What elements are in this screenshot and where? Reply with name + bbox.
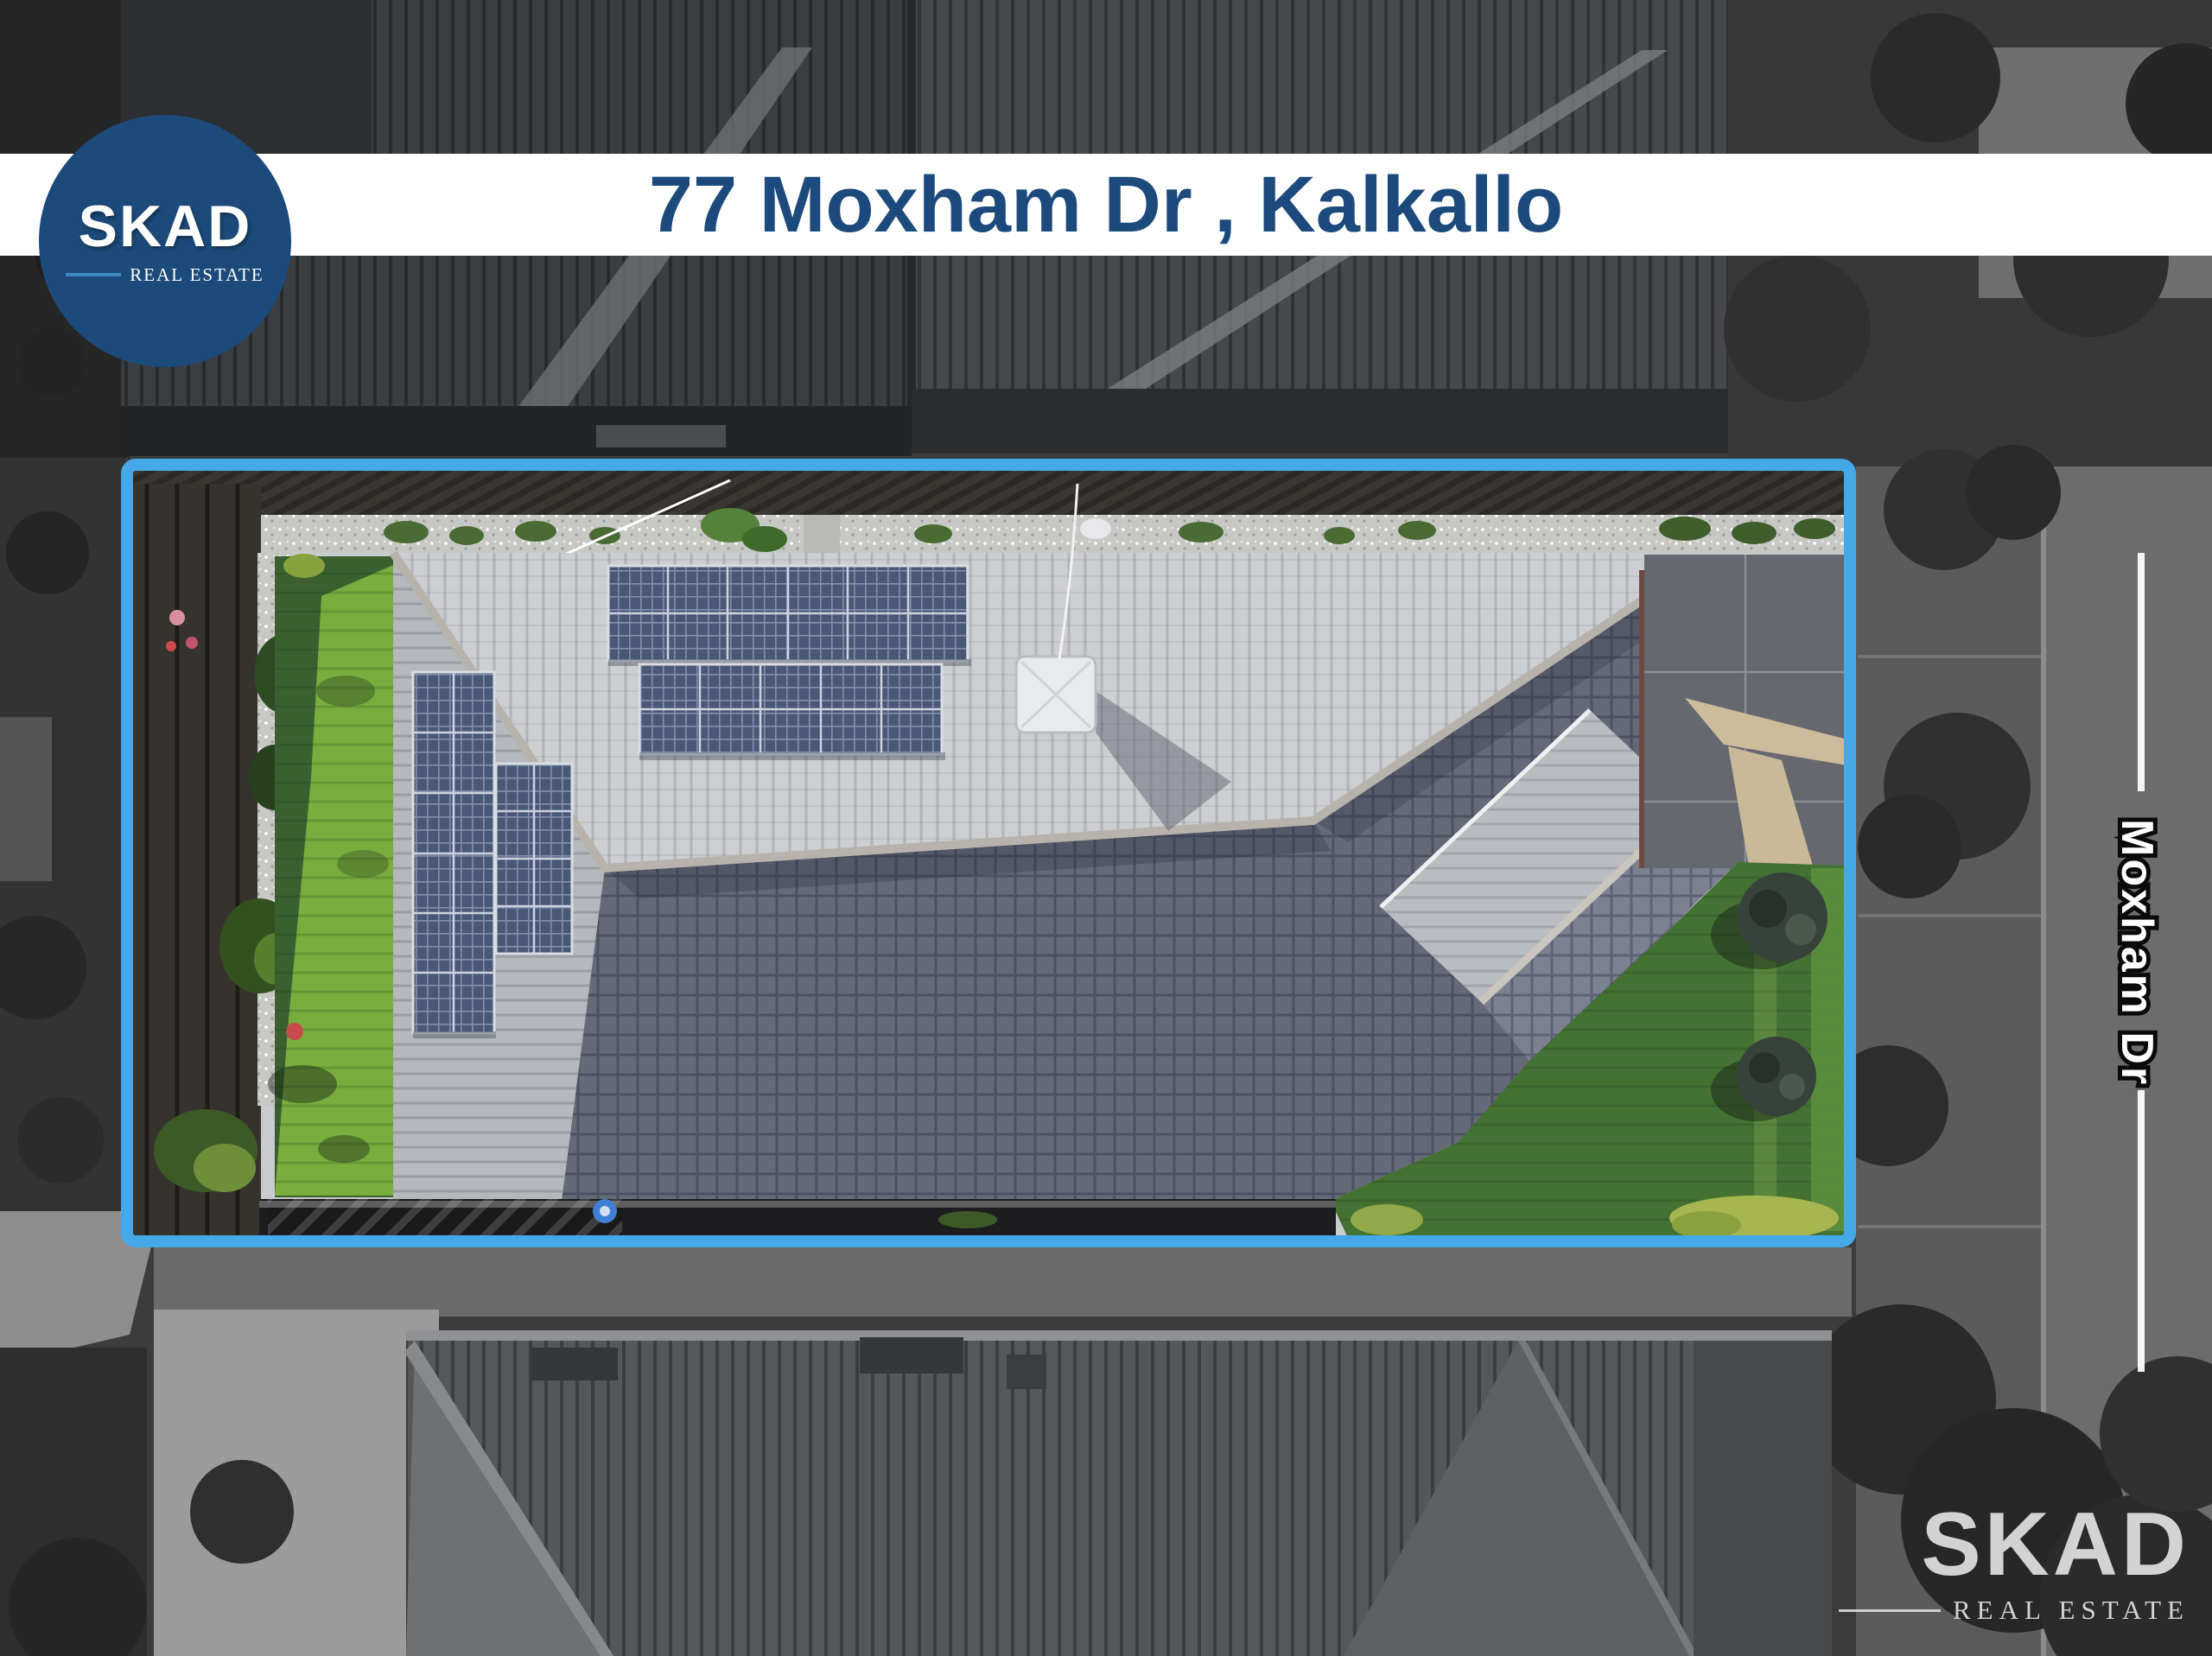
agency-logo-wordmark: SKAD	[79, 197, 252, 256]
solar-array-upper	[608, 566, 971, 666]
watermark-tagline: REAL ESTATE	[1953, 1595, 2190, 1626]
backyard-lawn	[268, 554, 397, 1197]
solar-array-middle	[639, 664, 945, 760]
title-banner: 77 Moxham Dr , Kalkallo	[0, 154, 2212, 256]
watermark-wordmark: SKAD	[1921, 1500, 2190, 1589]
agency-logo-tagline: REAL ESTATE	[130, 264, 264, 286]
property-interior	[128, 465, 1849, 1241]
road-label: Moxham Dr	[2112, 819, 2162, 1087]
back-fence-garden	[130, 466, 1847, 560]
watermark-underline-icon	[1839, 1609, 1941, 1612]
bottom-yard-strip	[259, 1199, 1336, 1239]
left-neighbor-strip	[0, 458, 125, 1244]
neighbor-roof-bottom	[0, 1211, 1852, 1656]
property-address-title: 77 Moxham Dr , Kalkallo	[649, 160, 1563, 251]
flyer-page: Moxham Dr 77 Moxham Dr , Kalkallo SKAD R…	[0, 0, 2212, 1656]
logo-underline-icon	[66, 273, 121, 276]
driveway	[1639, 555, 1847, 868]
agency-watermark: SKAD REAL ESTATE	[1839, 1500, 2190, 1626]
agency-logo-badge: SKAD REAL ESTATE	[39, 115, 291, 367]
